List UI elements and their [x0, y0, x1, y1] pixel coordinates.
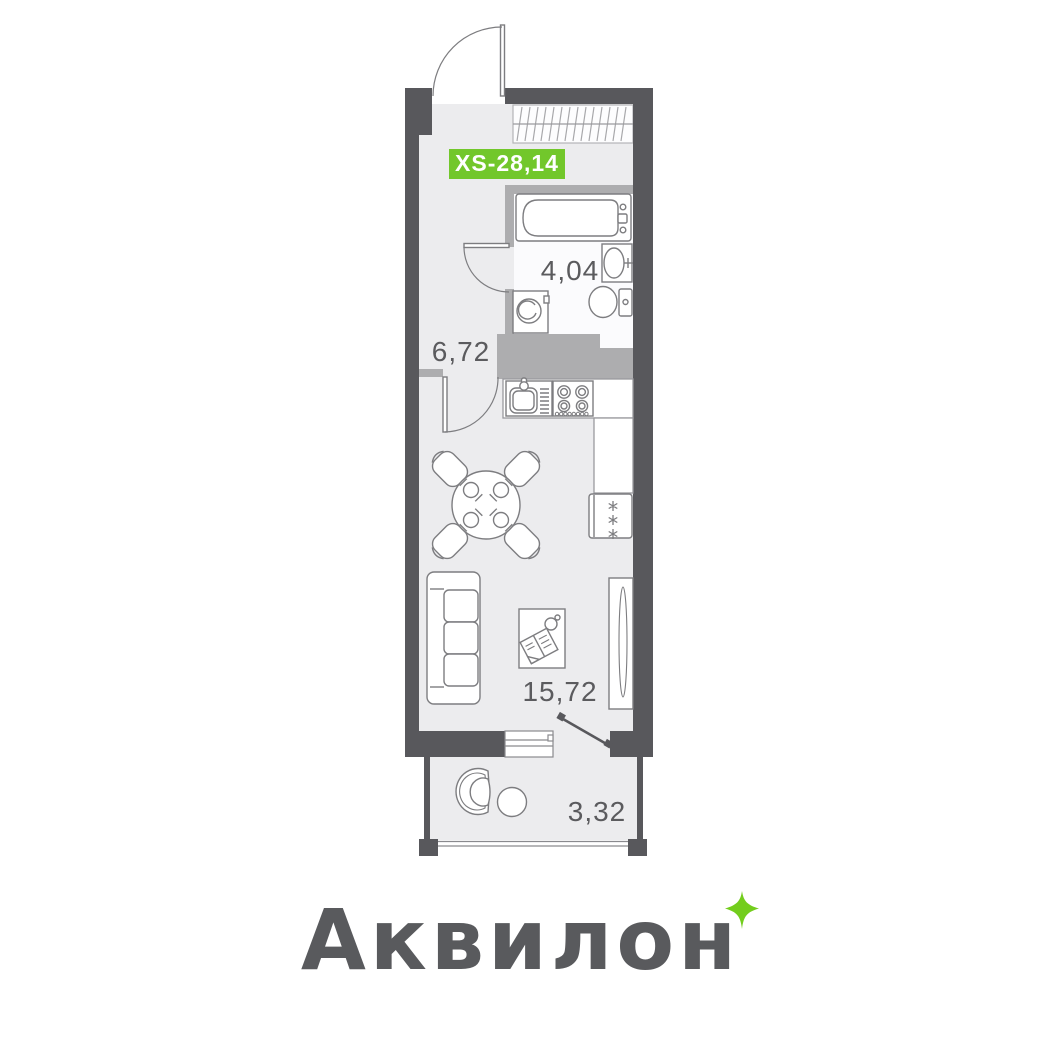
wardrobe-icon	[609, 578, 633, 709]
toilet-icon	[589, 287, 632, 318]
area-label-balcony: 3,32	[568, 796, 627, 827]
balcony-railing-icon	[438, 842, 628, 847]
washing-machine-icon	[513, 291, 549, 333]
built-in-closet-icon	[513, 105, 633, 143]
kitchen-sink-icon	[506, 378, 552, 416]
coffee-table-icon	[519, 609, 565, 668]
fridge-icon	[589, 494, 632, 539]
area-label-living: 15,72	[522, 676, 597, 707]
unit-badge-label: XS-28,14	[455, 150, 559, 176]
side-table-icon	[498, 788, 527, 817]
unit-badge: XS-28,14	[449, 149, 565, 179]
stove-icon	[553, 381, 593, 416]
floor-plan-card: XS-28,14 6,72 4,04 15,72 3,32 Аквилон	[0, 0, 1041, 1041]
entrance-door-icon	[433, 25, 505, 96]
bathtub-icon	[516, 194, 631, 241]
sparkle-icon	[724, 890, 760, 930]
logo-text: Аквилон	[0, 894, 1041, 986]
window-icon	[505, 731, 553, 757]
area-label-hallway: 6,72	[432, 336, 491, 367]
floor-plan: XS-28,14 6,72 4,04 15,72 3,32	[0, 0, 1041, 1041]
bathroom-sink-icon	[602, 244, 633, 282]
area-label-bathroom: 4,04	[541, 255, 600, 286]
sofa-icon	[427, 572, 480, 704]
